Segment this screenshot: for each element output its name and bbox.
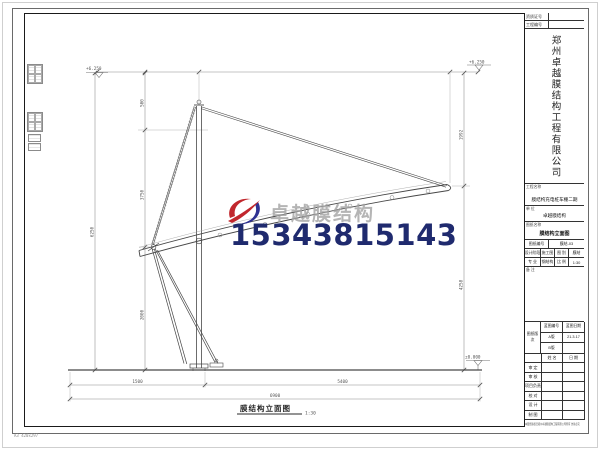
revision-col2-header: 蓝图日期 (563, 322, 585, 333)
dim-left-total: 6250 (90, 226, 96, 237)
revision-col1-header: 蓝图编号 (541, 322, 563, 333)
company-name: 郑州卓越膜结构工程有限公司 (548, 35, 562, 178)
drawing-no-row: 图纸编号 膜结-03 (525, 240, 584, 249)
sheet-name-label: 图纸名称 (526, 223, 541, 228)
sign-row-label: 审 核 (525, 373, 542, 382)
revision-corner-label: 图纸版次 (525, 322, 541, 354)
dim-right-seg-top: 1992 (459, 129, 465, 140)
project-no-row: 工程编号 (525, 21, 584, 29)
revision-b-label: B版 (541, 343, 563, 354)
sign-row-label: 项目负责 (525, 382, 542, 391)
dim-left-seg-bot: 2000 (140, 309, 146, 320)
project-no-label: 工程编号 (525, 21, 549, 28)
project-no-value (549, 21, 584, 28)
dim-left-seg-mid: 3750 (140, 189, 146, 200)
unit-value: 卓越膜结构 (525, 213, 584, 219)
anchor-base-plate (210, 363, 223, 367)
type-value: 膜结 (569, 249, 584, 257)
unit-cell: 单 位 卓越膜结构 (525, 206, 584, 222)
project-name-cell: 工程名称 膜结构充电桩车棚二期 (525, 184, 584, 206)
drawing-caption: 膜结构立面图 (240, 403, 291, 413)
unit-label: 单 位 (526, 207, 535, 212)
sign-row-label: 审 定 (525, 363, 542, 372)
watermark: 卓越膜结构 15343815143 (222, 192, 452, 254)
sign-row-label: 制 图 (525, 411, 542, 420)
sign-row-label: 校 对 (525, 392, 542, 401)
dim-right-seg-bot: 4258 (459, 279, 465, 290)
note-cell: 备 注 (525, 267, 584, 322)
stage-label: 设计阶段 (525, 249, 541, 257)
dim-bottom-total: 6900 (270, 393, 281, 399)
type-label: 图 别 (555, 249, 569, 257)
elevation-label-ground: ±0.000 (465, 355, 481, 361)
paper-size-label: A3 420x297 (14, 433, 38, 438)
mast-base-plate (190, 364, 208, 368)
info-grid: 图纸编号 膜结-03 设计阶段 施工图 图 别 膜结 专 业 钢结构 比 例 1… (525, 240, 584, 267)
major-label: 专 业 (525, 258, 541, 266)
project-name-label: 工程名称 (526, 185, 541, 190)
dim-bottom-right: 5400 (337, 379, 348, 385)
revision-b-date (563, 343, 585, 354)
dim-left-seg-top: 500 (140, 99, 146, 107)
watermark-phone-number: 15343815143 (230, 218, 457, 252)
revision-a-label: A版 (541, 333, 563, 344)
major-value: 钢结构 (541, 258, 555, 266)
scale-label: 比 例 (555, 258, 569, 266)
title-block: 资质证号 工程编号 郑州卓越膜结构工程有限公司 工程名称 膜结构充电桩车棚二期 … (524, 13, 584, 427)
elevation-label-top-right: +6.250 (469, 60, 485, 66)
signature-table: 姓 名 日 期 审 定 审 核 项目负责 校 对 设 计 制 图 (525, 354, 584, 420)
copyright-note: 本图纸版权归郑州卓越膜结构工程有限公司所有 仿冒必究 (525, 422, 580, 426)
stage-row: 设计阶段 施工图 图 别 膜结 (525, 249, 584, 258)
elevation-label-top-left: +6.250 (86, 66, 102, 72)
note-label: 备 注 (526, 268, 535, 273)
scale-value: 1:30 (569, 258, 584, 266)
sheet-name-cell: 图纸名称 膜结构立面图 (525, 222, 584, 240)
copyright-cell: 本图纸版权归郑州卓越膜结构工程有限公司所有 仿冒必究 (525, 420, 584, 427)
sign-corner (525, 354, 542, 363)
cert-value (549, 13, 584, 20)
sign-name-header: 姓 名 (542, 354, 563, 363)
revision-a-date: 21.3.17 (563, 333, 585, 344)
revision-table: 图纸版次 蓝图编号 蓝图日期 A版 21.3.17 B版 (525, 322, 584, 354)
sign-row-label: 设 计 (525, 401, 542, 410)
project-name-value: 膜结构充电桩车棚二期 (525, 197, 584, 203)
stage-value: 施工图 (541, 249, 555, 257)
sheet-name-value: 膜结构立面图 (525, 230, 584, 237)
major-row: 专 业 钢结构 比 例 1:30 (525, 258, 584, 267)
cert-row: 资质证号 (525, 13, 584, 21)
drawing-scale: 1:30 (305, 411, 316, 417)
drawing-no-value: 膜结-03 (549, 240, 584, 248)
drawing-sheet: +6.250 +6.250 ±0.000 6250 500 3750 2000 … (0, 0, 600, 450)
dim-bottom-left: 1500 (132, 379, 143, 385)
sign-date-header: 日 期 (563, 354, 585, 363)
cert-label: 资质证号 (525, 13, 549, 20)
company-name-cell: 郑州卓越膜结构工程有限公司 (525, 29, 584, 184)
drawing-no-label: 图纸编号 (525, 240, 549, 248)
